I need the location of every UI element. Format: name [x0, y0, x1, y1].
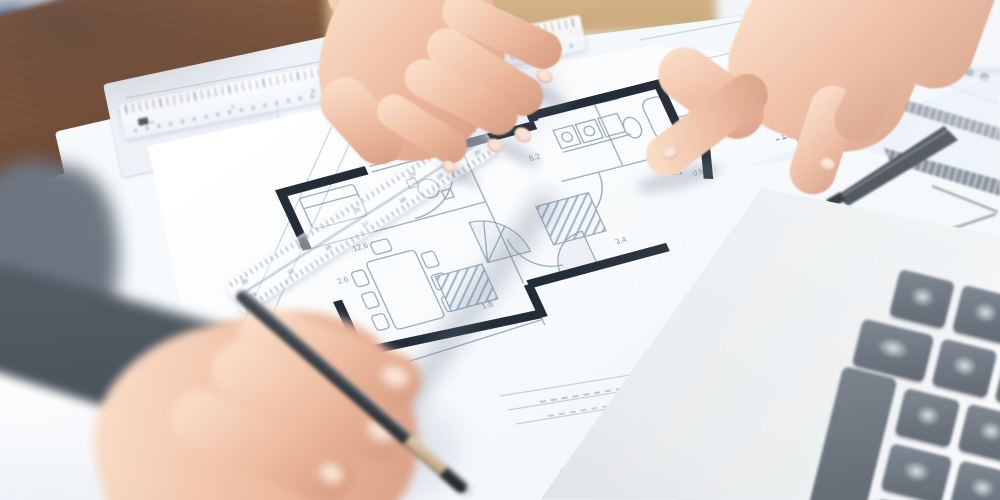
photo-architects-floorplan: 2.6 8.2 3.4 4.1 12.6 1.8 0.9 3.0 456789	[0, 0, 1000, 500]
hand-holding-pencil	[0, 0, 1000, 500]
